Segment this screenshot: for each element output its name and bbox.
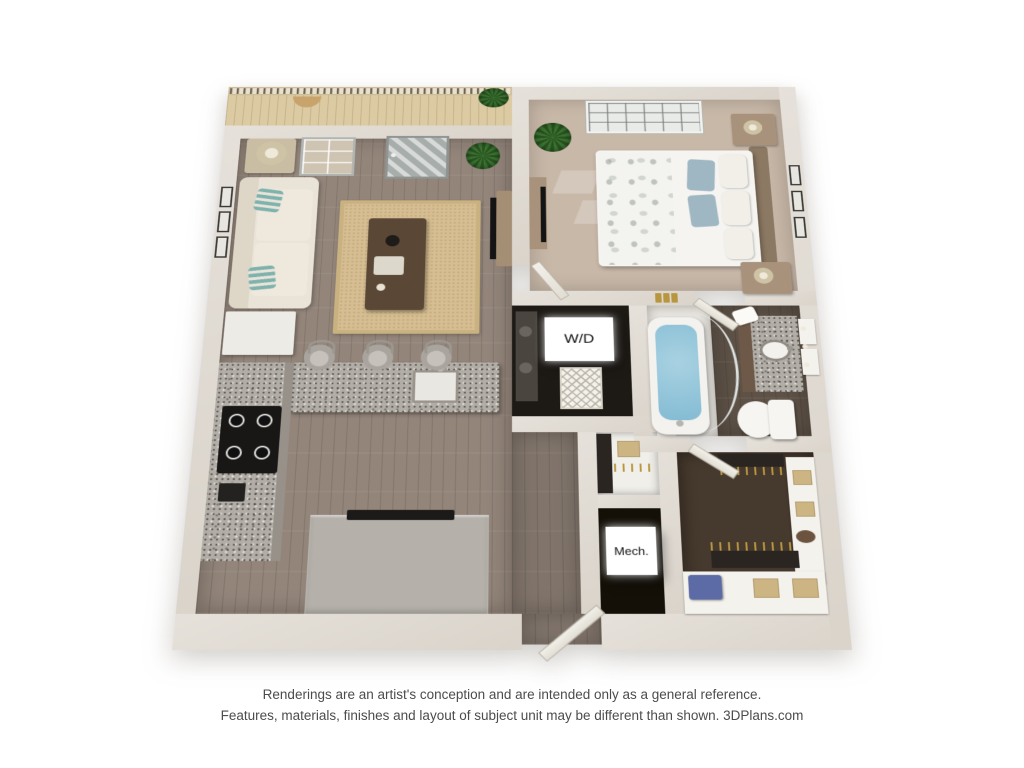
entry-half-wall <box>304 515 489 614</box>
bed-pillow-blue <box>687 159 715 191</box>
mirror-cabinet <box>801 349 820 375</box>
bedroom-window <box>586 101 704 133</box>
bed-pillow-white <box>724 228 755 259</box>
wall-bottom-left <box>172 614 522 650</box>
closet-hangers <box>710 542 798 551</box>
bedroom-art-frame <box>791 191 804 212</box>
wall-art-frame <box>217 211 231 232</box>
linen-clothes <box>596 434 613 494</box>
coffee-maker <box>218 483 246 501</box>
floorplan-rendering: W/D Mech. <box>0 0 1024 768</box>
disclaimer-caption: Renderings are an artist's conception an… <box>0 684 1024 726</box>
throw-pillow-teal <box>248 265 276 291</box>
storage-box <box>753 578 780 597</box>
balcony-glass-door <box>385 136 450 179</box>
purse <box>796 530 816 543</box>
nightstand-lamp <box>743 120 763 134</box>
wd-label-box: W/D <box>544 317 614 361</box>
wall-bath-bottom-a <box>634 436 691 452</box>
bedroom-tv <box>540 187 546 242</box>
sconce-light <box>804 363 810 368</box>
wall-bedroom-top <box>512 87 796 100</box>
refrigerator <box>222 311 296 354</box>
bedroom-art-frame <box>793 217 806 238</box>
wall-bottom-right <box>601 614 852 650</box>
washer-door <box>519 326 532 336</box>
mirror-cabinet <box>798 319 817 344</box>
wall-linen-mech-divider <box>598 495 661 508</box>
linen-hangers <box>614 464 656 472</box>
mech-label-box: Mech. <box>605 527 657 575</box>
storage-box <box>792 578 819 597</box>
washer <box>516 311 538 401</box>
decor-tray <box>373 256 404 275</box>
bed-pillow-white <box>718 154 748 188</box>
bedroom-art-frame <box>789 165 802 185</box>
balcony-plant <box>478 88 508 107</box>
living-plant <box>466 143 500 170</box>
wall-art-frame <box>219 187 233 208</box>
vanity-faucet <box>787 346 794 351</box>
laundry-cabinet <box>560 367 603 409</box>
linen-basket <box>617 441 640 457</box>
griddle <box>347 510 455 520</box>
cooktop <box>216 406 282 473</box>
mech-label-text: Mech. <box>614 544 649 557</box>
blue-bin <box>688 575 723 600</box>
washer-door <box>519 363 532 374</box>
bedroom-plant <box>534 123 572 152</box>
wd-label-text: W/D <box>564 332 594 347</box>
bed-floral-duvet <box>597 152 677 265</box>
wall-laundry-bottom <box>512 416 662 432</box>
decor-bottles <box>655 293 662 303</box>
hall-entry-floor <box>512 432 581 614</box>
decor-bottles <box>671 293 678 303</box>
sconce-light <box>800 326 806 330</box>
storage-box <box>795 502 816 517</box>
tub-faucet <box>676 420 684 426</box>
wall-living-bedroom-divider <box>512 100 530 266</box>
bed-pillow-white <box>721 191 751 225</box>
tv <box>490 198 497 260</box>
living-window <box>299 137 356 176</box>
nightstand-lamp <box>753 268 774 284</box>
wall-art-frame <box>214 236 228 257</box>
balcony-railing <box>228 87 512 95</box>
closet-clothes-south <box>711 551 800 568</box>
bed-pillow-blue <box>687 194 720 227</box>
tv-console <box>496 191 512 267</box>
caption-line2: Features, materials, finishes and layout… <box>0 705 1024 726</box>
toilet-tank <box>767 400 796 440</box>
vanity-sink <box>759 340 792 361</box>
storage-box <box>792 470 812 485</box>
island-sink <box>412 370 459 403</box>
wall-living-top <box>224 126 521 139</box>
caption-line1: Renderings are an artist's conception an… <box>0 684 1024 705</box>
sconce-light <box>802 344 808 349</box>
decor-bottles <box>663 293 670 303</box>
floorplan-3d: W/D Mech. <box>172 87 852 650</box>
